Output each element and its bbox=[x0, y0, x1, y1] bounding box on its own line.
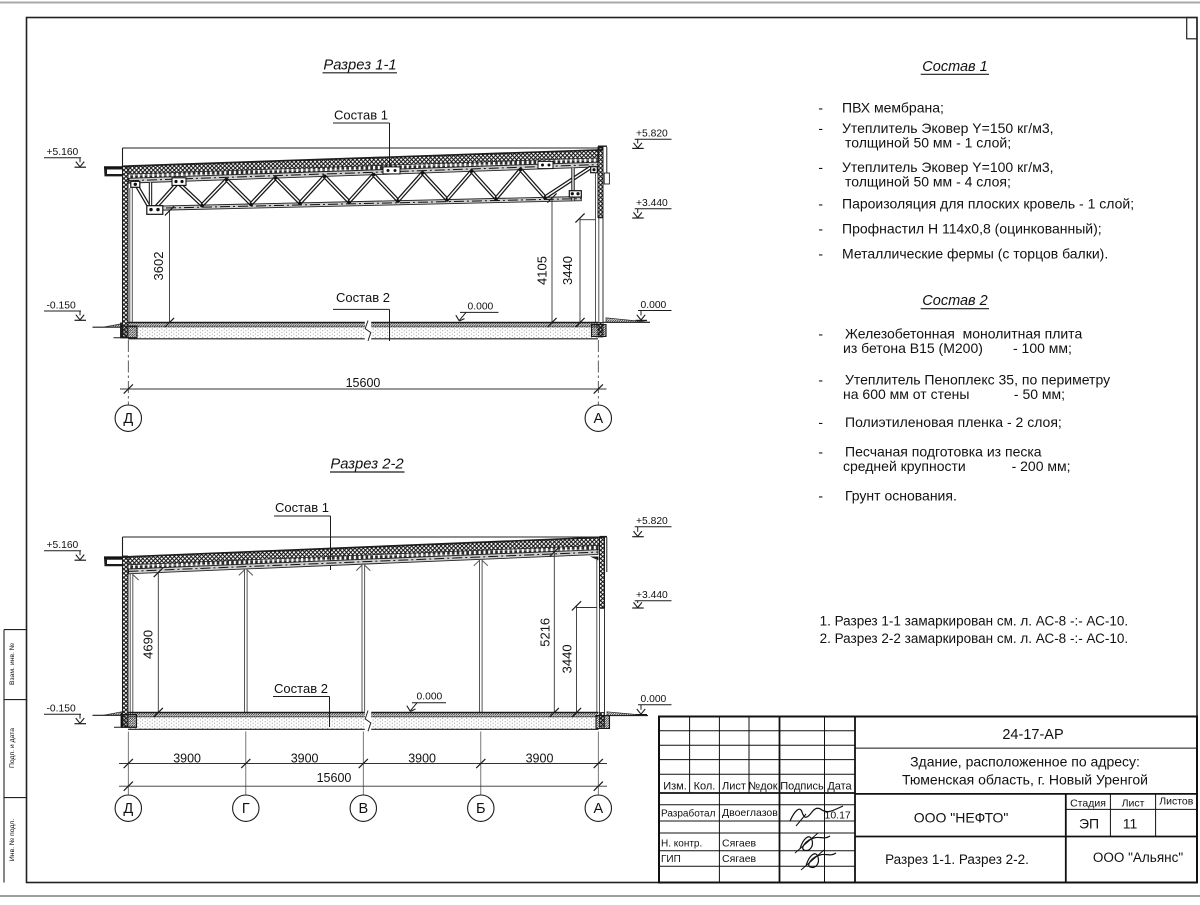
svg-text:-: - bbox=[818, 159, 823, 175]
svg-text:0.000: 0.000 bbox=[417, 692, 443, 703]
svg-text:Разрез 1-1: Разрез 1-1 bbox=[323, 58, 396, 74]
svg-text:11: 11 bbox=[1123, 816, 1138, 832]
svg-text:Лист: Лист bbox=[722, 781, 746, 793]
svg-text:4105: 4105 bbox=[535, 256, 550, 285]
svg-text:А: А bbox=[593, 801, 603, 817]
svg-text:Здание, расположенное по адрес: Здание, расположенное по адресу: bbox=[910, 754, 1140, 770]
svg-text:3602: 3602 bbox=[151, 252, 166, 281]
svg-text:ЭП: ЭП bbox=[1079, 816, 1099, 832]
svg-text:-: - bbox=[818, 488, 823, 504]
svg-text:Двоеглазов: Двоеглазов bbox=[722, 807, 778, 819]
svg-text:-: - bbox=[818, 326, 823, 342]
svg-text:3440: 3440 bbox=[560, 644, 575, 673]
svg-text:Изм.: Изм. bbox=[663, 781, 687, 793]
svg-text:Разработал: Разработал bbox=[661, 808, 716, 820]
svg-text:+5.160: +5.160 bbox=[47, 540, 79, 551]
svg-text:1. Разрез 1-1 замаркирован см.: 1. Разрез 1-1 замаркирован см. л. АС-8 -… bbox=[820, 614, 1129, 629]
svg-text:3900: 3900 bbox=[408, 751, 436, 765]
svg-text:- 50 мм;: - 50 мм; bbox=[1014, 386, 1065, 402]
svg-text:толщиной 50 мм - 1 слой;: толщиной 50 мм - 1 слой; bbox=[845, 134, 1011, 150]
svg-text:0.000: 0.000 bbox=[641, 300, 667, 311]
svg-text:-: - bbox=[818, 120, 823, 136]
svg-text:Пароизоляция для плоских крове: Пароизоляция для плоских кровель - 1 сло… bbox=[842, 195, 1134, 211]
svg-text:Кол.: Кол. bbox=[694, 781, 716, 793]
svg-text:-: - bbox=[818, 414, 823, 430]
svg-text:-0.150: -0.150 bbox=[47, 704, 76, 715]
svg-text:Лист: Лист bbox=[1122, 797, 1145, 809]
svg-text:3900: 3900 bbox=[173, 751, 201, 765]
svg-text:Г: Г bbox=[242, 801, 250, 817]
svg-text:Подп. и дата: Подп. и дата bbox=[9, 728, 16, 768]
svg-text:5216: 5216 bbox=[538, 618, 553, 647]
svg-text:ПВХ мембрана;: ПВХ мембрана; bbox=[842, 99, 944, 115]
svg-text:Состав 2: Состав 2 bbox=[336, 290, 390, 305]
svg-text:+5.160: +5.160 bbox=[47, 147, 79, 158]
svg-text:Состав 1: Состав 1 bbox=[275, 500, 329, 515]
svg-text:В: В bbox=[358, 801, 368, 817]
svg-text:0.000: 0.000 bbox=[468, 302, 494, 313]
svg-text:-: - bbox=[818, 195, 823, 211]
svg-text:Подпись: Подпись bbox=[780, 781, 824, 793]
svg-text:15600: 15600 bbox=[346, 376, 381, 390]
svg-text:из бетона В15 (М200): из бетона В15 (М200) bbox=[843, 340, 983, 356]
svg-text:ООО "НЕФТО": ООО "НЕФТО" bbox=[914, 810, 1009, 826]
svg-text:Разрез 1-1. Разрез 2-2.: Разрез 1-1. Разрез 2-2. bbox=[885, 852, 1029, 867]
svg-text:Профнастил Н 114х0,8 (оцинкова: Профнастил Н 114х0,8 (оцинкованный); bbox=[842, 221, 1102, 237]
svg-text:А: А bbox=[593, 411, 603, 427]
svg-text:толщиной 50 мм - 4 слоя;: толщиной 50 мм - 4 слоя; bbox=[845, 174, 1011, 190]
svg-text:0.000: 0.000 bbox=[641, 694, 667, 705]
svg-text:Д: Д bbox=[123, 411, 133, 427]
svg-text:Инв. № подл.: Инв. № подл. bbox=[9, 819, 16, 861]
svg-text:Тюменская область, г. Новый Ур: Тюменская область, г. Новый Уренгой bbox=[902, 772, 1148, 788]
svg-text:Полиэтиленовая пленка - 2 слоя: Полиэтиленовая пленка - 2 слоя; bbox=[845, 414, 1062, 430]
svg-text:-: - bbox=[818, 221, 823, 237]
svg-text:3440: 3440 bbox=[560, 256, 575, 285]
svg-text:Д: Д bbox=[123, 801, 133, 817]
svg-text:-0.150: -0.150 bbox=[47, 300, 76, 311]
svg-text:+5.820: +5.820 bbox=[636, 516, 668, 527]
svg-text:+5.820: +5.820 bbox=[636, 129, 668, 140]
svg-text:Металлические фермы (с торцов: Металлические фермы (с торцов балки). bbox=[842, 245, 1108, 261]
svg-text:-: - bbox=[818, 245, 823, 261]
svg-text:Состав 2: Состав 2 bbox=[274, 681, 328, 696]
svg-text:Стадия: Стадия bbox=[1070, 797, 1106, 809]
svg-text:-: - bbox=[818, 371, 823, 387]
svg-text:Дата: Дата bbox=[827, 781, 852, 793]
svg-text:Состав 1: Состав 1 bbox=[334, 108, 388, 123]
svg-text:3900: 3900 bbox=[526, 751, 554, 765]
svg-text:15600: 15600 bbox=[317, 771, 352, 785]
svg-text:Н. контр.: Н. контр. bbox=[661, 839, 702, 850]
svg-text:-: - bbox=[818, 99, 823, 115]
svg-text:Взам. инв. №: Взам. инв. № bbox=[9, 643, 16, 685]
svg-text:на 600 мм от стены: на 600 мм от стены bbox=[843, 386, 969, 402]
svg-text:+3.440: +3.440 bbox=[636, 590, 668, 601]
svg-text:ООО "Альянс": ООО "Альянс" bbox=[1093, 850, 1183, 865]
svg-text:-: - bbox=[818, 444, 823, 460]
svg-text:+3.440: +3.440 bbox=[636, 198, 668, 209]
svg-text:средней крупности: средней крупности bbox=[843, 458, 966, 474]
svg-text:№док.: №док. bbox=[748, 781, 780, 793]
svg-text:Грунт основания.: Грунт основания. bbox=[845, 488, 957, 504]
svg-text:Б: Б bbox=[476, 801, 486, 817]
svg-text:Разрез 2-2: Разрез 2-2 bbox=[330, 457, 404, 473]
svg-text:Состав 1: Состав 1 bbox=[922, 59, 987, 75]
svg-text:2. Разрез 2-2 замаркирован см.: 2. Разрез 2-2 замаркирован см. л. АС-8 -… bbox=[820, 631, 1129, 646]
svg-text:Сягаев: Сягаев bbox=[722, 853, 757, 865]
svg-text:24-17-АР: 24-17-АР bbox=[1002, 727, 1063, 743]
svg-text:Листов: Листов bbox=[1159, 796, 1194, 808]
svg-text:ГИП: ГИП bbox=[661, 854, 681, 865]
svg-text:Сягаев: Сягаев bbox=[722, 838, 757, 850]
svg-text:3900: 3900 bbox=[291, 751, 319, 765]
svg-text:4690: 4690 bbox=[141, 630, 156, 659]
svg-text:- 100 мм;: - 100 мм; bbox=[1013, 340, 1072, 356]
svg-text:Состав 2: Состав 2 bbox=[922, 293, 987, 309]
svg-text:- 200 мм;: - 200 мм; bbox=[1012, 458, 1071, 474]
